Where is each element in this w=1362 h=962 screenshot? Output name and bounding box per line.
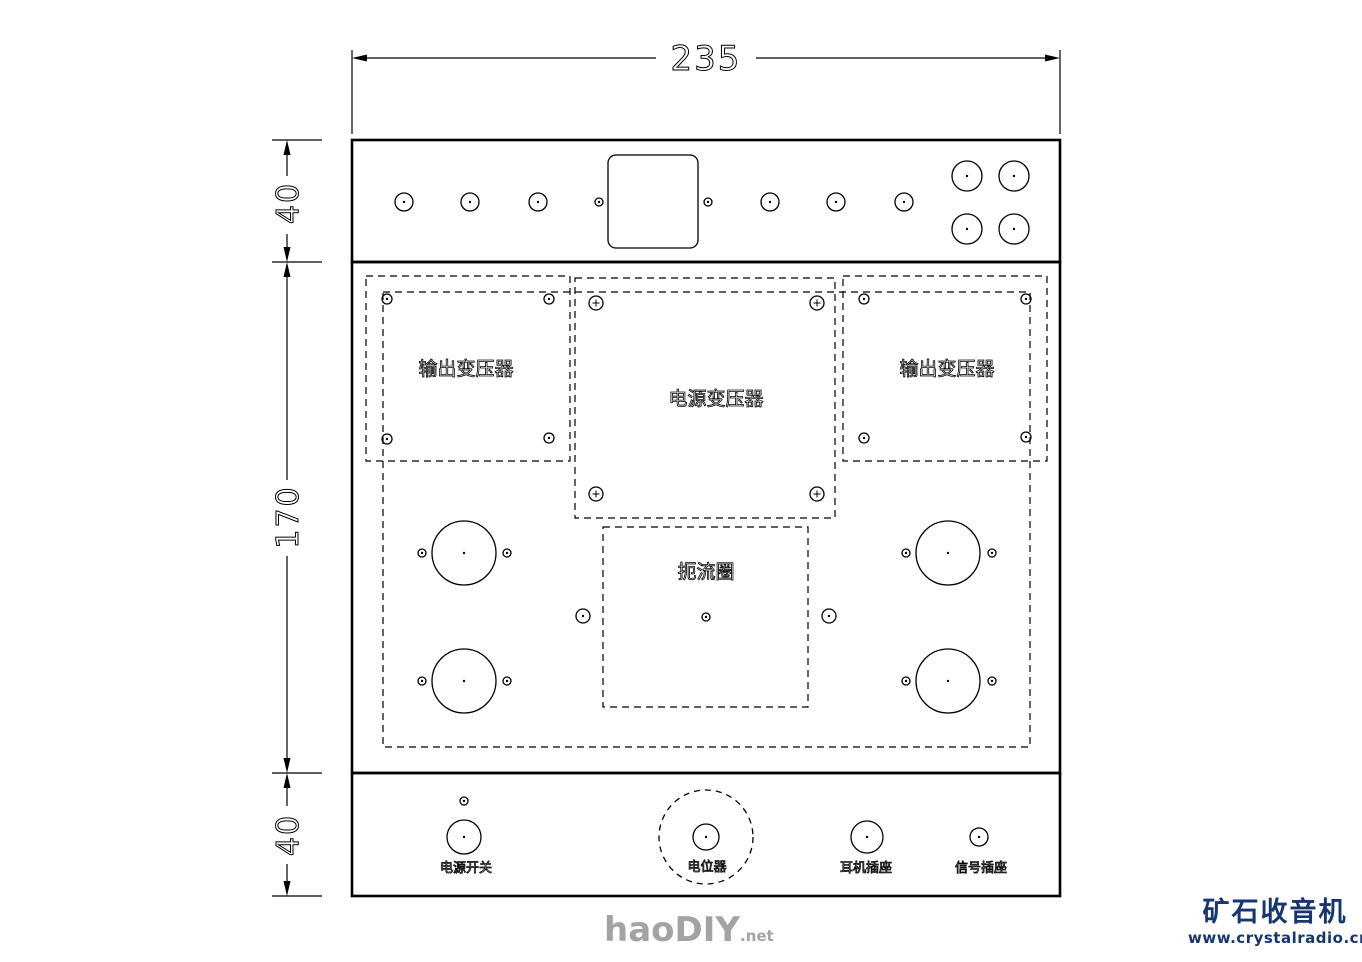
crystalradio-logo: 矿石收音机 www.crystalradio.cn [1188, 897, 1362, 962]
label-output-transformer-left: 输出变压器 [418, 358, 513, 380]
center-mark [598, 201, 600, 203]
center-mark [469, 201, 471, 203]
center-mark [386, 298, 388, 300]
center-mark [1013, 228, 1015, 230]
center-mark [769, 201, 771, 203]
logo-url: www.crystalradio.cn [1188, 929, 1362, 947]
watermark-haodiy: haoDIY.net [604, 910, 774, 950]
center-mark [978, 836, 980, 838]
center-mark [863, 298, 865, 300]
center-mark [1025, 298, 1027, 300]
center-mark [403, 201, 405, 203]
dim-value-top-height: 40 [271, 182, 306, 224]
cad-drawing: 2354017040输出变压器电源变压器输出变压器扼流圈电源开关电位器耳机插座信… [0, 0, 1362, 962]
center-mark [386, 438, 388, 440]
watermark-text: haoDIY [604, 910, 740, 950]
logo-title: 矿石收音机 [1188, 897, 1362, 929]
arrowhead [1045, 55, 1060, 62]
center-mark [506, 680, 508, 682]
center-mark [991, 680, 993, 682]
center-mark [548, 437, 550, 439]
arrowhead [284, 773, 291, 788]
arrowhead [352, 55, 367, 62]
center-mark [947, 680, 949, 682]
arrowhead [284, 262, 291, 277]
center-mark [463, 836, 465, 838]
arrowhead [284, 881, 291, 896]
center-mark [966, 175, 968, 177]
page-background: { "dimensions": { "overall_width": "235"… [0, 0, 1362, 962]
center-mark [966, 228, 968, 230]
center-mark [421, 552, 423, 554]
dim-value-width: 235 [671, 39, 742, 79]
center-mark [903, 201, 905, 203]
top-panel-square-cutout [608, 155, 698, 248]
center-mark [705, 836, 707, 838]
center-mark [835, 201, 837, 203]
label-potentiometer: 电位器 [687, 860, 726, 875]
center-mark [991, 552, 993, 554]
center-mark [707, 201, 709, 203]
dim-value-bottom-height: 40 [271, 814, 306, 856]
watermark-suffix: .net [740, 927, 774, 945]
label-signal-jack: 信号插座 [955, 861, 1007, 876]
center-mark [1013, 175, 1015, 177]
center-mark [1025, 436, 1027, 438]
label-power-transformer: 电源变压器 [668, 388, 763, 410]
center-mark [463, 552, 465, 554]
center-mark [905, 552, 907, 554]
center-mark [548, 298, 550, 300]
center-mark [866, 836, 868, 838]
label-power-switch: 电源开关 [440, 861, 492, 876]
center-mark [705, 616, 707, 618]
arrowhead [284, 140, 291, 155]
label-headphone-jack: 耳机插座 [840, 861, 892, 876]
dim-value-middle-height: 170 [271, 485, 306, 548]
arrowhead [284, 758, 291, 773]
center-mark [828, 615, 830, 617]
center-mark [537, 201, 539, 203]
chassis-top-panel [352, 140, 1060, 262]
center-mark [905, 680, 907, 682]
center-mark [506, 552, 508, 554]
center-mark [947, 552, 949, 554]
label-output-transformer-right: 输出变压器 [899, 358, 994, 380]
arrowhead [284, 247, 291, 262]
center-mark [463, 680, 465, 682]
label-choke: 扼流圈 [677, 561, 734, 583]
center-mark [463, 800, 465, 802]
center-mark [863, 437, 865, 439]
chassis-bottom-panel [352, 773, 1060, 896]
center-mark [421, 680, 423, 682]
center-mark [582, 615, 584, 617]
